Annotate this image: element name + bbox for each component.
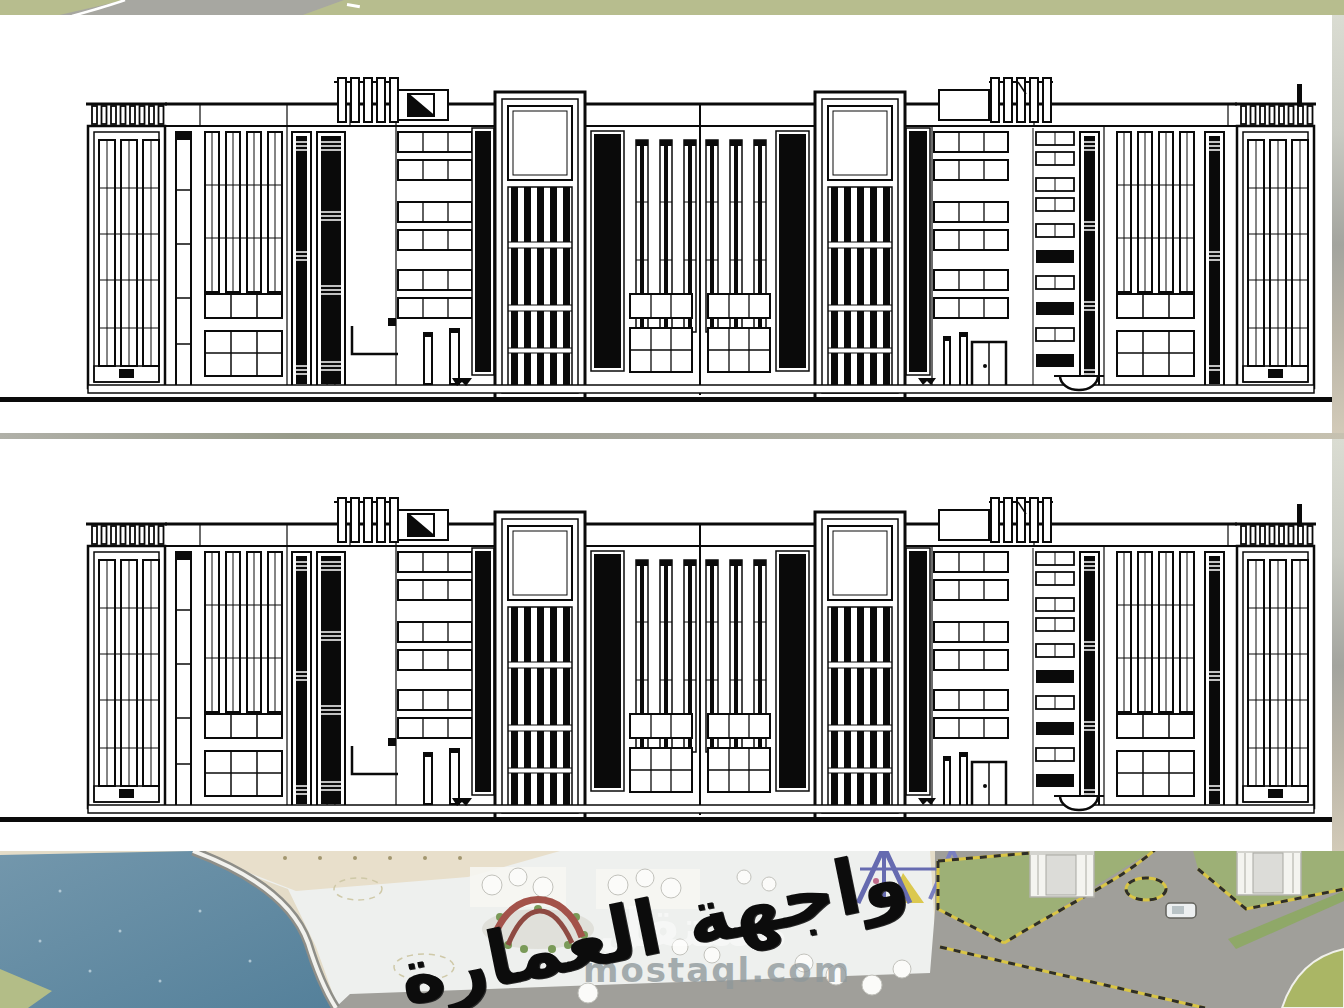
background-right-sliver-bottom [1332, 439, 1344, 851]
background-divider-strip [0, 433, 1344, 439]
background-right-sliver-top [1332, 15, 1344, 433]
site-plan-top-strip [0, 0, 1344, 16]
elevation-drawing-1 [0, 70, 1332, 415]
elevation-drawing-2 [0, 490, 1332, 835]
car [1166, 903, 1196, 918]
slide: مستقل mostaql.com واجهة العمارة [0, 0, 1344, 1008]
